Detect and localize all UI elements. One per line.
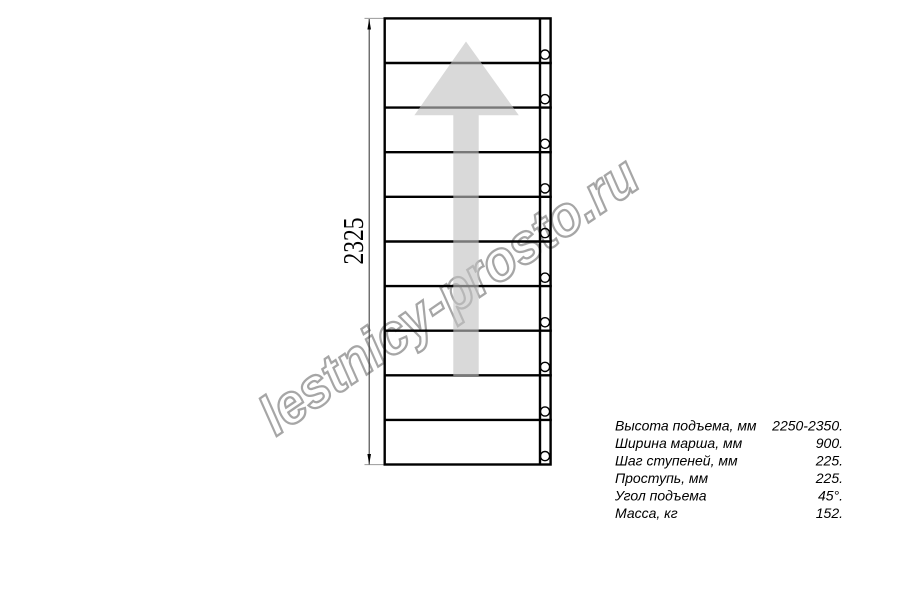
svg-text:Масса, кг: Масса, кг <box>615 505 678 521</box>
svg-text:Угол подъема: Угол подъема <box>614 488 707 504</box>
svg-text:2250-2350.: 2250-2350. <box>771 418 843 434</box>
svg-text:2325: 2325 <box>338 218 370 265</box>
svg-text:45°.: 45°. <box>818 488 843 504</box>
svg-text:225.: 225. <box>815 470 843 486</box>
svg-text:Проступь, мм: Проступь, мм <box>615 470 709 486</box>
svg-text:152.: 152. <box>816 505 843 521</box>
svg-text:900.: 900. <box>816 435 843 451</box>
svg-text:Ширина марша, мм: Ширина марша, мм <box>615 435 743 451</box>
svg-text:Шаг ступеней, мм: Шаг ступеней, мм <box>615 453 738 469</box>
svg-text:Высота подъема, мм: Высота подъема, мм <box>615 418 757 434</box>
svg-text:225.: 225. <box>815 453 843 469</box>
